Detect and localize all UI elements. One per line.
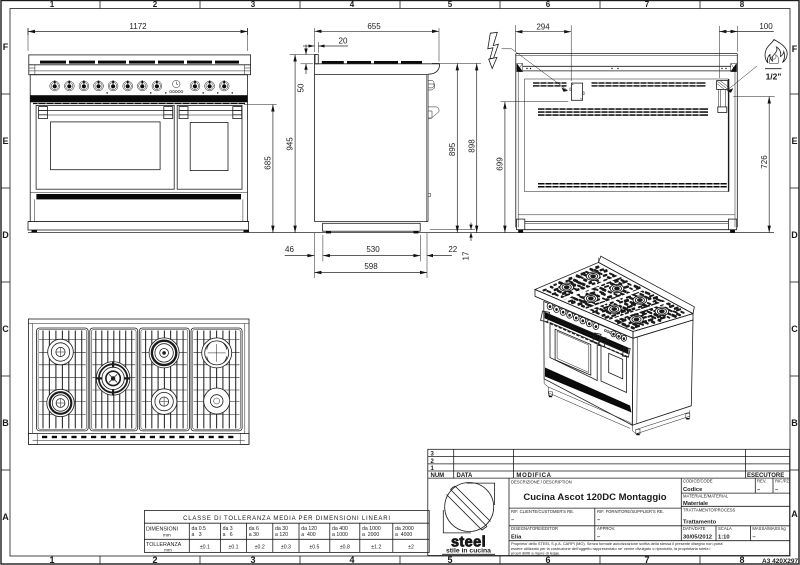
svg-text:D: D: [791, 230, 798, 240]
svg-text:1/2": 1/2": [766, 72, 782, 82]
svg-text:598: 598: [364, 262, 378, 271]
svg-text:1: 1: [49, 555, 54, 565]
svg-text:MASSA/MASS kg: MASSA/MASS kg: [752, 526, 786, 531]
svg-text:1172: 1172: [129, 22, 147, 31]
svg-text:±0.1: ±0.1: [200, 544, 210, 550]
svg-text:CLASSE DI TOLLERANZA MEDIA PER: CLASSE DI TOLLERANZA MEDIA PER DIMENSION…: [183, 516, 391, 522]
svg-text:stile in cucina: stile in cucina: [446, 548, 491, 555]
svg-text:3: 3: [251, 0, 256, 9]
svg-text:8: 8: [740, 0, 745, 9]
svg-text:F: F: [3, 42, 9, 52]
svg-text:A3 420X297: A3 420X297: [762, 558, 799, 565]
svg-text:30/05/2012: 30/05/2012: [683, 535, 712, 541]
svg-text:a 1000: a 1000: [332, 532, 348, 538]
svg-text:E: E: [791, 136, 797, 146]
svg-text:a 30: a 30: [249, 532, 259, 538]
svg-text:DATA/DATE: DATA/DATE: [683, 526, 706, 531]
svg-text:2: 2: [152, 555, 157, 565]
svg-text:TRATTAMENTO/PROCESS: TRATTAMENTO/PROCESS: [683, 508, 736, 513]
svg-text:mm: mm: [163, 533, 171, 538]
svg-text:±2: ±2: [408, 544, 414, 550]
svg-text:a 2000: a 2000: [362, 532, 379, 538]
svg-text:RIF. FORNITORE/SUPPLIER'S RE.: RIF. FORNITORE/SUPPLIER'S RE.: [597, 509, 664, 514]
svg-text:7: 7: [645, 0, 650, 9]
svg-text:RIF. CLIENTE/CUSTOMER'S RE.: RIF. CLIENTE/CUSTOMER'S RE.: [511, 509, 574, 514]
svg-text:Elia: Elia: [511, 535, 522, 541]
svg-text:46: 46: [285, 245, 294, 254]
svg-text:Codice: Codice: [683, 487, 703, 493]
svg-text:530: 530: [366, 245, 380, 254]
svg-text:NUM: NUM: [431, 473, 445, 479]
svg-text:a 4000: a 4000: [395, 532, 412, 538]
svg-text:RIF./PZ.: RIF./PZ.: [775, 479, 790, 484]
svg-text:±0.5: ±0.5: [309, 544, 319, 550]
svg-text:APPROV.: APPROV.: [597, 526, 615, 531]
svg-text:F: F: [792, 44, 798, 54]
svg-text:B: B: [791, 418, 798, 428]
svg-text:7: 7: [644, 555, 649, 565]
svg-text:8: 8: [739, 555, 744, 565]
svg-text:REV.: REV.: [757, 479, 766, 484]
svg-text:DESCRIZIONE / DESCRIPTION: DESCRIZIONE / DESCRIPTION: [511, 479, 572, 484]
svg-text:4: 4: [349, 555, 354, 565]
svg-text:±0.8: ±0.8: [340, 544, 350, 550]
svg-text:3: 3: [250, 555, 255, 565]
svg-text:5: 5: [448, 0, 453, 9]
svg-text:CODICE/CODE: CODICE/CODE: [683, 479, 713, 484]
svg-text:699: 699: [496, 157, 505, 171]
svg-text:685: 685: [264, 156, 273, 170]
svg-text:±0.3: ±0.3: [281, 544, 291, 550]
svg-text:20: 20: [339, 37, 348, 46]
svg-text:MODIFICA: MODIFICA: [516, 473, 551, 479]
svg-text:C: C: [791, 324, 798, 334]
svg-text:SCALA: SCALA: [718, 526, 732, 531]
svg-text:DISEGNATORE/EDITOR: DISEGNATORE/EDITOR: [511, 526, 558, 531]
svg-text:a 6: a 6: [223, 532, 233, 538]
svg-text:a 3: a 3: [192, 532, 202, 538]
svg-text:E: E: [2, 136, 8, 146]
svg-text:655: 655: [367, 22, 381, 31]
svg-text:945: 945: [286, 137, 295, 151]
svg-text:Trattamento: Trattamento: [683, 520, 717, 526]
svg-text:6: 6: [546, 0, 551, 9]
svg-text:17: 17: [462, 251, 471, 260]
svg-text:a 400: a 400: [301, 532, 316, 538]
svg-text:±0.2: ±0.2: [255, 544, 265, 550]
svg-text:726: 726: [760, 155, 769, 169]
svg-text:22: 22: [448, 245, 457, 254]
svg-text:C: C: [2, 324, 9, 334]
svg-text:±0.1: ±0.1: [228, 544, 238, 550]
svg-text:898: 898: [467, 139, 476, 153]
svg-text:DATA: DATA: [457, 473, 473, 479]
svg-text:2: 2: [153, 0, 158, 9]
svg-text:100: 100: [759, 22, 773, 31]
svg-text:±1.2: ±1.2: [371, 544, 381, 550]
svg-text:a 120: a 120: [275, 532, 288, 538]
svg-text:MATERIALE/MATERIAL: MATERIALE/MATERIAL: [683, 494, 729, 499]
svg-text:mm: mm: [164, 547, 172, 552]
svg-text:Cucina Ascot 120DC Montaggio: Cucina Ascot 120DC Montaggio: [523, 492, 666, 503]
svg-text:4: 4: [350, 0, 355, 9]
svg-text:50: 50: [297, 83, 306, 92]
svg-text:5: 5: [447, 555, 452, 565]
svg-text:propri diritti a rigore di leg: propri diritti a rigore di legge.: [511, 550, 560, 555]
svg-text:1:10: 1:10: [718, 535, 730, 541]
svg-text:1: 1: [50, 0, 55, 9]
svg-text:A: A: [791, 509, 798, 519]
svg-text:895: 895: [448, 142, 457, 156]
svg-text:D: D: [2, 230, 9, 240]
svg-text:294: 294: [536, 22, 550, 31]
svg-text:B: B: [2, 418, 9, 428]
svg-text:6: 6: [545, 555, 550, 565]
svg-text:A: A: [2, 512, 9, 522]
svg-text:Materiale: Materiale: [683, 501, 709, 507]
